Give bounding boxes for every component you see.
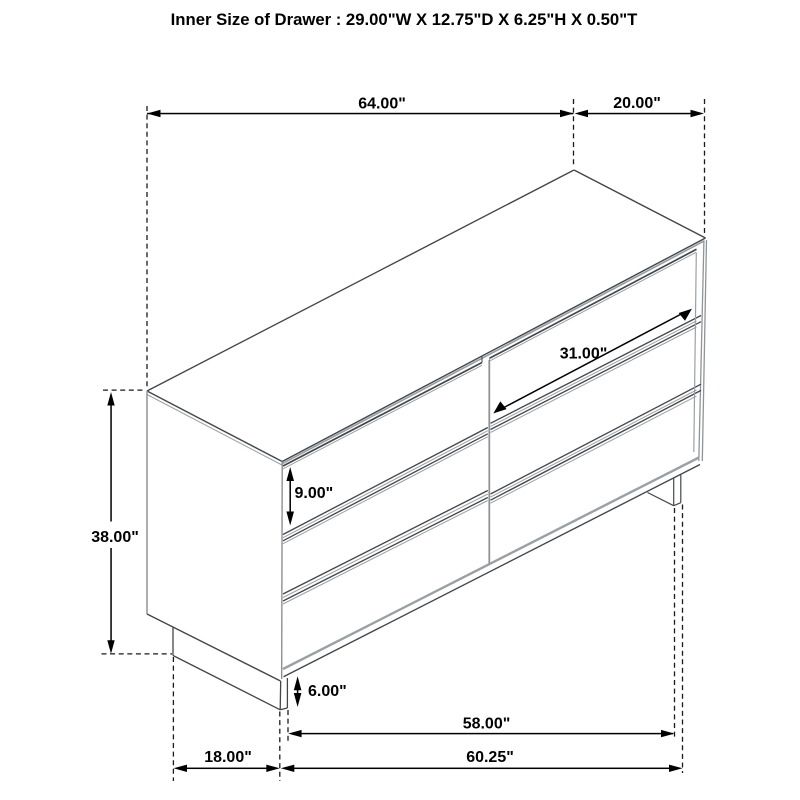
svg-text:31.00": 31.00" [560, 346, 608, 363]
svg-text:64.00": 64.00" [358, 96, 406, 113]
svg-text:20.00": 20.00" [613, 95, 661, 112]
svg-text:9.00": 9.00" [295, 485, 334, 502]
svg-text:58.00": 58.00" [463, 716, 511, 733]
svg-text:38.00": 38.00" [91, 529, 139, 546]
svg-text:18.00": 18.00" [204, 749, 252, 766]
svg-text:6.00": 6.00" [308, 683, 347, 700]
svg-text:Inner Size of Drawer : 29.00"W: Inner Size of Drawer : 29.00"W X 12.75"D… [171, 10, 638, 29]
svg-text:60.25": 60.25" [466, 749, 514, 766]
